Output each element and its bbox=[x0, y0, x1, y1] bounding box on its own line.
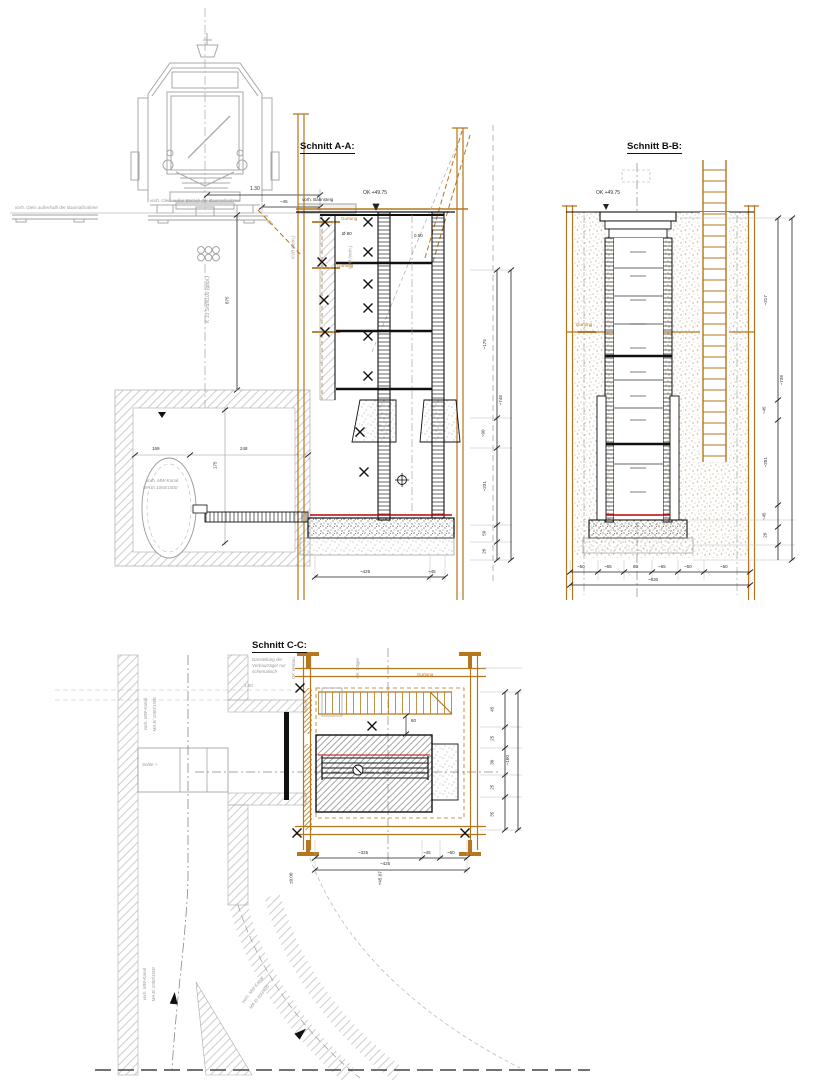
dim169-label: 169 bbox=[152, 447, 160, 452]
level-label-a: OK +49.75 bbox=[363, 191, 387, 196]
canal-c-upper-2: MA Ei 1060/1500 bbox=[153, 697, 158, 731]
section-c-note-line3: schematisch bbox=[252, 670, 277, 675]
level-label-b: OK +49.75 bbox=[596, 191, 620, 196]
gurtung-label-a1: Gurtung bbox=[341, 217, 357, 222]
pm000-label: ±0.00 bbox=[289, 873, 294, 884]
dim-a-right-4: 20 bbox=[482, 549, 487, 554]
dim-c-right-1: 25 bbox=[490, 736, 495, 741]
dim-a-bottom-0: ~425 bbox=[360, 570, 370, 575]
canal-label-a1: vorh. MW-Kanal bbox=[146, 479, 178, 484]
dim-a-right-2: ~231 bbox=[483, 481, 488, 491]
dim-a-right-total: ~748 bbox=[499, 395, 504, 405]
dim-c-right-4: 35 bbox=[490, 812, 495, 817]
platform-label: vorh. Bahnsteig bbox=[302, 198, 333, 203]
dim45-label: ~45 bbox=[280, 200, 288, 205]
dim-b-bottom-total: ~530 bbox=[648, 578, 658, 583]
canal-label-a2: MA Ei 1060/1500 bbox=[143, 486, 177, 491]
dim175-label: 175 bbox=[214, 461, 219, 469]
d050-label: 0.50 bbox=[414, 234, 423, 239]
dim-c-bottom-2: ~60 bbox=[447, 851, 455, 856]
dim-b-right-0: ~317 bbox=[764, 295, 769, 305]
dim-b-right-4: 20 bbox=[763, 533, 768, 538]
dim130-label: 1.30 bbox=[250, 187, 260, 192]
ok-verbau-label: OK Verbau bbox=[292, 657, 297, 679]
section-b-title: Schnitt B-B: bbox=[627, 142, 682, 154]
dim-a-bottom-1: ~45 bbox=[428, 570, 436, 575]
section-a-shaft-structure bbox=[193, 125, 493, 585]
track-left-label: vorh. Gleis außerhalb der Baumaßnahme bbox=[15, 206, 98, 211]
dim-c-right-3: 25 bbox=[490, 785, 495, 790]
canal-c-lower-1: vorh. MW-Kanal bbox=[143, 968, 148, 1000]
section-c-note-line2: Verbauträger nur bbox=[252, 664, 286, 669]
p4507-label: +45.07 bbox=[379, 871, 384, 885]
dim-b-bottom-1: ~65 bbox=[604, 565, 612, 570]
dim-c-bottom-total: ~425 bbox=[380, 862, 390, 867]
dim875-label: 875 bbox=[226, 296, 231, 304]
construction-drawing-sheet: Schnitt A-A: Schnitt B-B: Schnitt C-C: D… bbox=[0, 0, 824, 1080]
dim-c-right-2: 30 bbox=[490, 760, 495, 765]
dim-c-bottom-0: ~325 bbox=[358, 851, 368, 856]
dim-b-bottom-0: ~50 bbox=[577, 565, 585, 570]
section-c-note-line1: Darstellung der bbox=[252, 658, 283, 663]
dim-b-bottom-5: ~50 bbox=[720, 565, 728, 570]
tram-front-elevation bbox=[131, 8, 279, 216]
dim-b-bottom-3: ~65 bbox=[658, 565, 666, 570]
dim-b-right-2: ~201 bbox=[764, 457, 769, 467]
section-c-title: Schnitt C-C: bbox=[252, 641, 307, 653]
dim-c-right-0: 45 bbox=[490, 707, 495, 712]
section-a-existing-canal-block bbox=[115, 390, 311, 566]
dim-b-bottom-2: 80 bbox=[633, 565, 638, 570]
dim-b-right-total: ~738 bbox=[780, 375, 785, 385]
dim-c-bottom-1: ~45 bbox=[423, 851, 431, 856]
dim80c-label: 80 bbox=[411, 719, 416, 724]
dim-a-right-0: ~175 bbox=[483, 339, 488, 349]
track-tram-label: vorh. Gleis außer Betrieb der Baumaßnahm… bbox=[150, 199, 240, 204]
dim-b-right-3: ~45 bbox=[763, 512, 768, 520]
gurtung-label-a2: Gurtung bbox=[337, 264, 353, 269]
gurtung-label-c: Gurtung bbox=[417, 673, 433, 678]
canal-c-upper-1: vorh. MW-Kanal bbox=[144, 698, 149, 730]
dia80-label: Ø 80 bbox=[342, 232, 352, 237]
dim-a-right-3: 50 bbox=[482, 531, 487, 536]
tram-dimensions bbox=[204, 189, 323, 393]
axis-k-label: K 10 SrdN100 (gepl.) bbox=[206, 276, 211, 323]
d150-label: 1.50 bbox=[244, 684, 253, 689]
dim-a-right-1: ~90 bbox=[482, 429, 487, 437]
section-c-canal-corridor bbox=[95, 655, 590, 1078]
dim-b-bottom-4: ~50 bbox=[684, 565, 692, 570]
gurtung-label-b: Gurtung bbox=[576, 323, 592, 328]
dim-b-right-1: ~45 bbox=[763, 406, 768, 414]
ok-traeger-label: OK Träger bbox=[356, 658, 361, 679]
kvb-label-1: KVB (vorh.) bbox=[291, 236, 296, 259]
dim248-label: 248 bbox=[240, 447, 248, 452]
canal-c-lower-2: MA Ei 1060/1500 bbox=[152, 967, 157, 1001]
section-a-title: Schnitt A-A: bbox=[300, 142, 355, 154]
section-b-drawing bbox=[562, 160, 759, 600]
sohle-label: Sohle + bbox=[142, 763, 157, 768]
dim-c-right-total: ~160 bbox=[506, 755, 511, 765]
drawing-linework bbox=[0, 0, 824, 1080]
